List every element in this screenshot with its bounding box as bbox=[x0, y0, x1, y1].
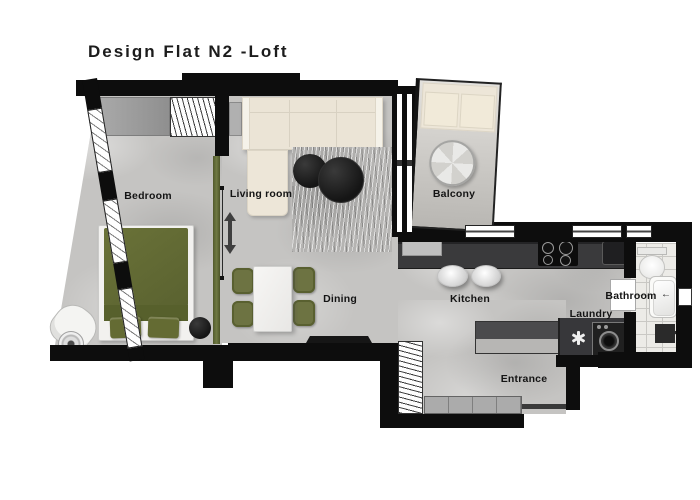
burner bbox=[543, 255, 553, 265]
wall bbox=[228, 343, 383, 361]
coffee-table-large bbox=[318, 157, 364, 203]
bathroom-vanity bbox=[655, 324, 675, 343]
shower-arrow-icon: ← bbox=[661, 289, 671, 300]
balcony-table bbox=[428, 139, 476, 187]
laundry-label: Laundry bbox=[570, 308, 613, 320]
track-end bbox=[220, 186, 224, 190]
sofa-seam bbox=[244, 112, 381, 113]
wall bbox=[203, 345, 233, 388]
entrance-door-leaf bbox=[522, 404, 568, 409]
side-cabinet bbox=[229, 102, 242, 136]
burner bbox=[560, 255, 571, 266]
entrance-closet bbox=[398, 341, 423, 414]
partition-wall bbox=[215, 96, 229, 156]
sofa bbox=[242, 97, 383, 150]
burner bbox=[542, 242, 554, 254]
bench-cushion bbox=[459, 94, 495, 130]
dining-table bbox=[253, 266, 292, 332]
wall bbox=[300, 80, 398, 96]
asterisk-icon bbox=[571, 331, 585, 345]
balcony-label: Balcony bbox=[433, 188, 475, 200]
burner bbox=[559, 241, 573, 255]
entrance-cabinets bbox=[424, 396, 522, 414]
washer-door bbox=[599, 331, 619, 351]
curtain bbox=[213, 156, 220, 344]
sofa-armrest bbox=[375, 97, 383, 150]
floor-plan: ← Design Flat N2 -Loft Bedro bbox=[0, 0, 700, 500]
window bbox=[626, 225, 652, 238]
bathroom-wall bbox=[624, 312, 636, 354]
pillow bbox=[148, 316, 180, 338]
bar-stool bbox=[437, 265, 468, 287]
sofa-seam bbox=[336, 100, 337, 147]
wall bbox=[398, 414, 524, 428]
kitchen-label: Kitchen bbox=[450, 293, 490, 305]
bedroom-label: Bedroom bbox=[124, 190, 172, 202]
tv bbox=[306, 336, 372, 343]
bathroom-label: Bathroom bbox=[605, 290, 656, 302]
track-end bbox=[220, 276, 224, 280]
wardrobe bbox=[99, 97, 170, 136]
sofa-armrest bbox=[242, 97, 250, 150]
sliding-glass-door bbox=[397, 94, 402, 232]
washer-knob bbox=[604, 325, 608, 329]
balcony bbox=[408, 78, 502, 233]
dining-chair bbox=[293, 267, 315, 293]
window bbox=[465, 225, 515, 238]
sofa-chaise bbox=[247, 150, 288, 216]
balcony-bench bbox=[420, 82, 497, 132]
window bbox=[678, 288, 692, 306]
cutting-board bbox=[402, 241, 442, 256]
cooktop bbox=[538, 240, 578, 266]
toilet bbox=[637, 247, 667, 255]
dining-label: Dining bbox=[323, 293, 357, 305]
page-title: Design Flat N2 -Loft bbox=[88, 42, 289, 62]
dining-chair bbox=[293, 300, 315, 326]
dining-chair bbox=[232, 301, 254, 327]
living-room-label: Living room bbox=[230, 188, 292, 200]
window bbox=[572, 225, 622, 238]
bench-cushion bbox=[423, 92, 459, 128]
closet-hanging-rail bbox=[170, 97, 216, 137]
washing-machine bbox=[592, 322, 626, 356]
dining-chair bbox=[232, 268, 254, 294]
wall bbox=[566, 364, 580, 410]
bar-stool bbox=[471, 265, 501, 287]
sliding-door-track bbox=[222, 188, 223, 278]
entrance-console bbox=[475, 321, 561, 354]
sliding-door-arrow-icon bbox=[224, 212, 236, 254]
bedside-stool bbox=[189, 317, 211, 339]
washer-knob bbox=[597, 325, 601, 329]
wall bbox=[598, 352, 692, 368]
sliding-glass-door bbox=[407, 94, 412, 232]
sofa-seam bbox=[289, 100, 290, 147]
entrance-label: Entrance bbox=[501, 373, 548, 385]
wall bbox=[182, 73, 300, 96]
bathroom-wall bbox=[624, 238, 636, 278]
